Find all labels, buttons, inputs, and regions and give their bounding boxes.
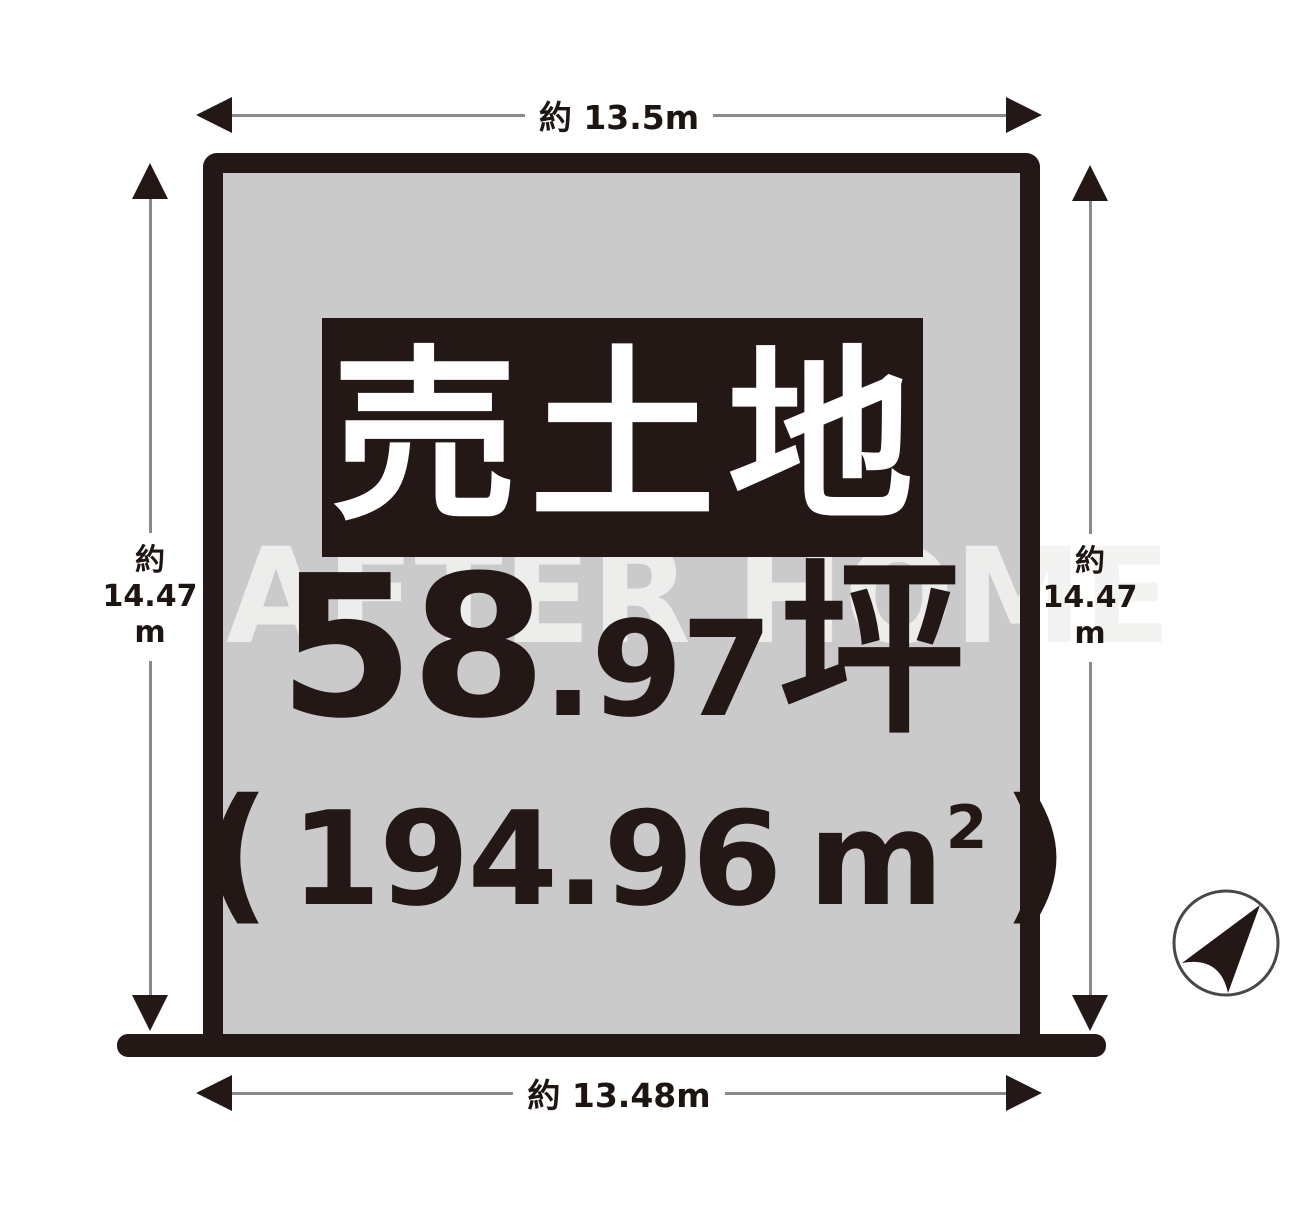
arrowhead-up-icon <box>132 163 168 199</box>
dimension-bottom: 約 13.48m <box>196 1074 1042 1112</box>
area-square-meters: (194.96m2) <box>203 748 1040 979</box>
arrowhead-up-icon <box>1072 165 1108 201</box>
dimension-line <box>713 114 1006 117</box>
dimension-top: 約 13.5m <box>196 96 1042 134</box>
land-sale-site-plan: 約 13.5m 約 13.48m 約 14.47 m 約 14.47 m <box>0 0 1300 1208</box>
arrowhead-down-icon <box>1072 995 1108 1031</box>
dimension-line <box>1089 201 1092 534</box>
tsubo-integer: 58 <box>278 534 543 762</box>
dimension-right-value: 14.47 <box>1043 580 1138 616</box>
tsubo-unit: 坪 <box>779 542 965 759</box>
dimension-left-approx: 約 <box>103 543 198 579</box>
dimension-line <box>1089 662 1092 995</box>
sqm-value: 194.96 <box>291 783 781 935</box>
paren-open: ( <box>203 767 271 939</box>
arrowhead-right-icon <box>1006 1075 1042 1111</box>
dimension-line <box>232 114 525 117</box>
tsubo-decimal: .97 <box>543 593 771 747</box>
dimension-top-label: 約 13.5m <box>525 91 713 139</box>
sqm-unit: m <box>808 783 943 935</box>
dimension-left-unit: m <box>103 615 198 651</box>
arrowhead-right-icon <box>1006 97 1042 133</box>
sqm-superscript: 2 <box>946 793 988 863</box>
arrowhead-left-icon <box>196 1075 232 1111</box>
sale-label: 売土地 <box>332 345 926 531</box>
dimension-line <box>725 1092 1006 1095</box>
arrowhead-left-icon <box>196 97 232 133</box>
dimension-line <box>149 199 152 533</box>
bottom-boundary-bar <box>117 1034 1106 1057</box>
dimension-right-label: 約 14.47 m <box>1043 534 1138 662</box>
dimension-line <box>232 1092 513 1095</box>
dimension-right-unit: m <box>1043 616 1138 652</box>
arrowhead-down-icon <box>132 995 168 1031</box>
north-arrow-icon <box>1168 886 1284 1000</box>
dimension-right: 約 14.47 m <box>1048 165 1132 1031</box>
dimension-left-label: 約 14.47 m <box>103 533 198 661</box>
dimension-bottom-label: 約 13.48m <box>513 1069 724 1117</box>
sale-label-box: 売土地 <box>322 318 923 557</box>
dimension-right-approx: 約 <box>1043 544 1138 580</box>
dimension-left: 約 14.47 m <box>108 163 192 1031</box>
dimension-line <box>149 661 152 995</box>
dimension-left-value: 14.47 <box>103 579 198 615</box>
